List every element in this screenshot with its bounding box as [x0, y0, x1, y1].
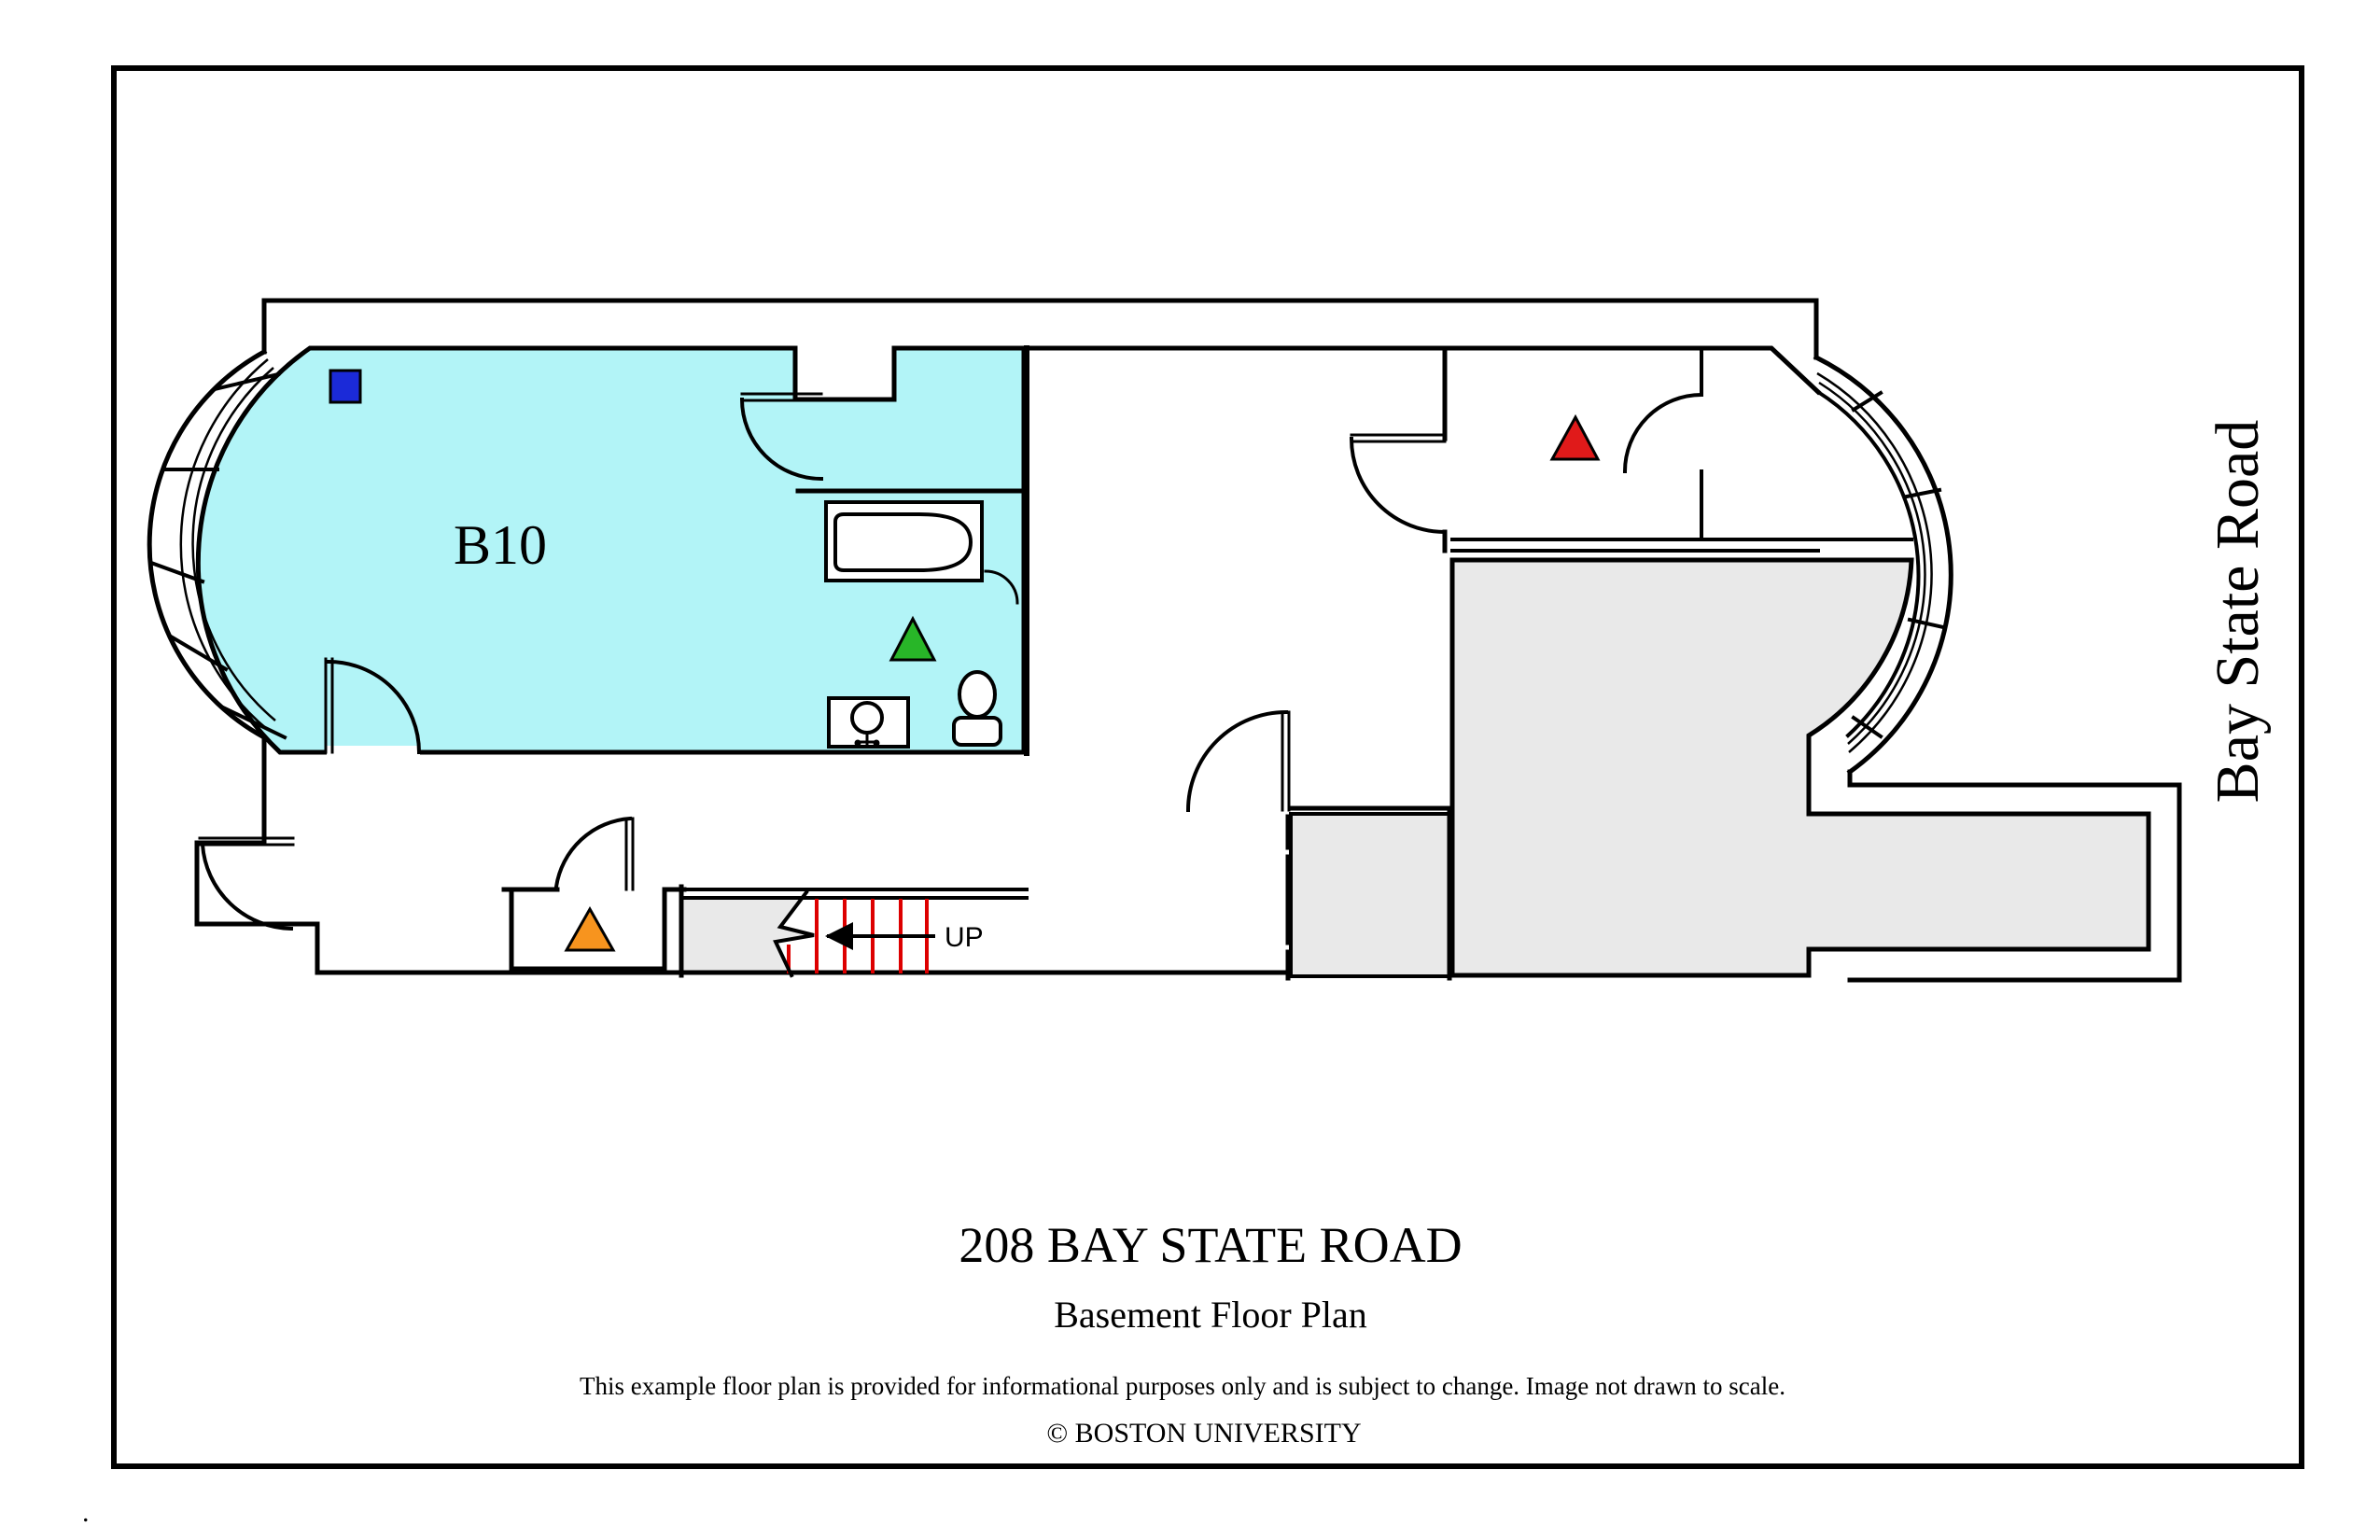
room-b10-label: B10 — [454, 514, 547, 576]
stray-dot: . — [82, 1497, 90, 1528]
marker-blue-square — [330, 371, 360, 402]
title-plan-name: Basement Floor Plan — [1054, 1294, 1367, 1336]
excluded-room-small — [1291, 814, 1449, 976]
copyright-text: © BOSTON UNIVERSITY — [1046, 1418, 1361, 1449]
floor-plan-page: UP B10 Bay State Road 208 BAY STATE ROAD… — [0, 0, 2380, 1540]
disclaimer-text: This example floor plan is provided for … — [580, 1372, 1785, 1400]
title-address: 208 BAY STATE ROAD — [959, 1217, 1462, 1273]
bathtub-icon — [835, 514, 971, 570]
sink-icon — [852, 703, 882, 733]
stairs-up-label: UP — [945, 922, 984, 953]
floor-plan-drawing: UP B10 Bay State Road 208 BAY STATE ROAD… — [0, 0, 2380, 1540]
street-label: Bay State Road — [2204, 420, 2272, 804]
